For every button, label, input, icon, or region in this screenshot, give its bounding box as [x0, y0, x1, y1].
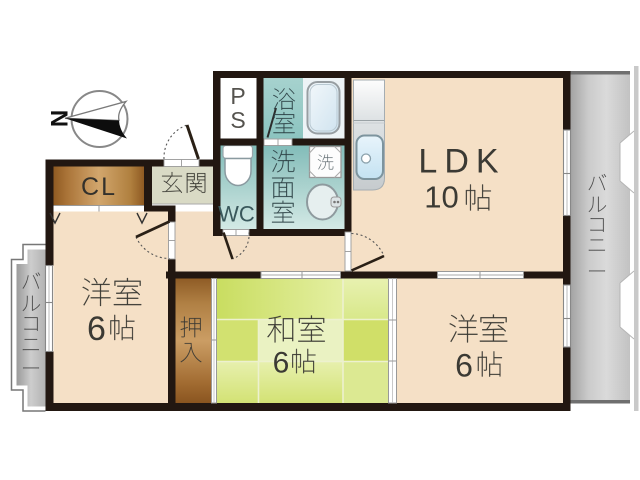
- svg-text:N: N: [47, 110, 74, 127]
- svg-text:LDK: LDK: [418, 143, 505, 181]
- svg-text:CL: CL: [81, 173, 117, 201]
- svg-text:10: 10: [424, 180, 458, 215]
- svg-text:WC: WC: [218, 202, 255, 227]
- svg-text:P: P: [230, 83, 245, 109]
- svg-text:6: 6: [455, 348, 473, 384]
- svg-text:6: 6: [273, 347, 290, 380]
- svg-text:S: S: [230, 107, 245, 133]
- svg-text:6: 6: [87, 310, 106, 348]
